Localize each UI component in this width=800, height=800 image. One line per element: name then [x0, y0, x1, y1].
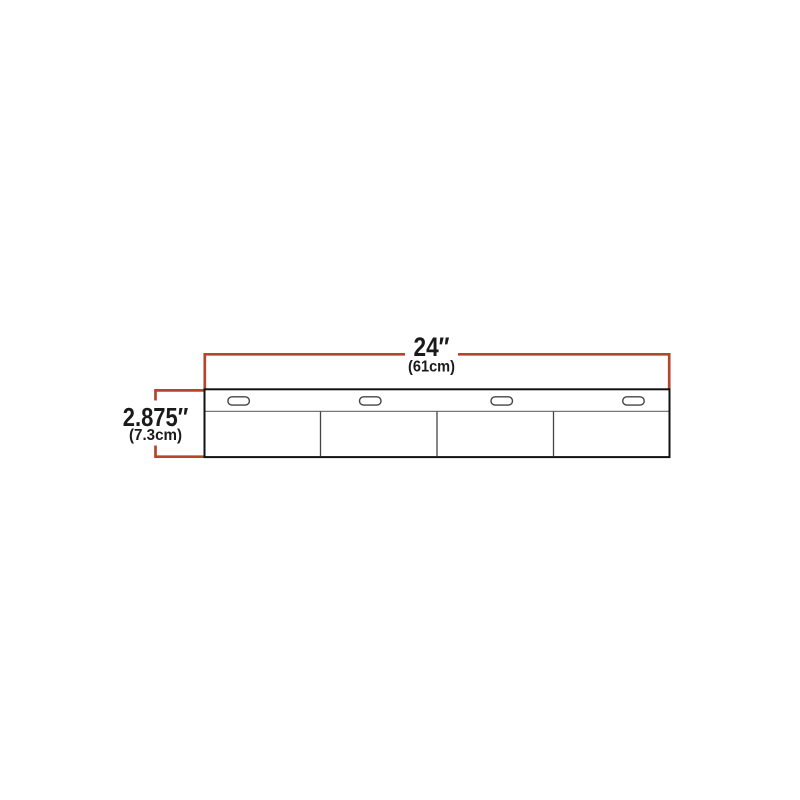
svg-text:(61cm): (61cm) — [408, 358, 455, 375]
svg-text:(7.3cm): (7.3cm) — [129, 427, 182, 444]
